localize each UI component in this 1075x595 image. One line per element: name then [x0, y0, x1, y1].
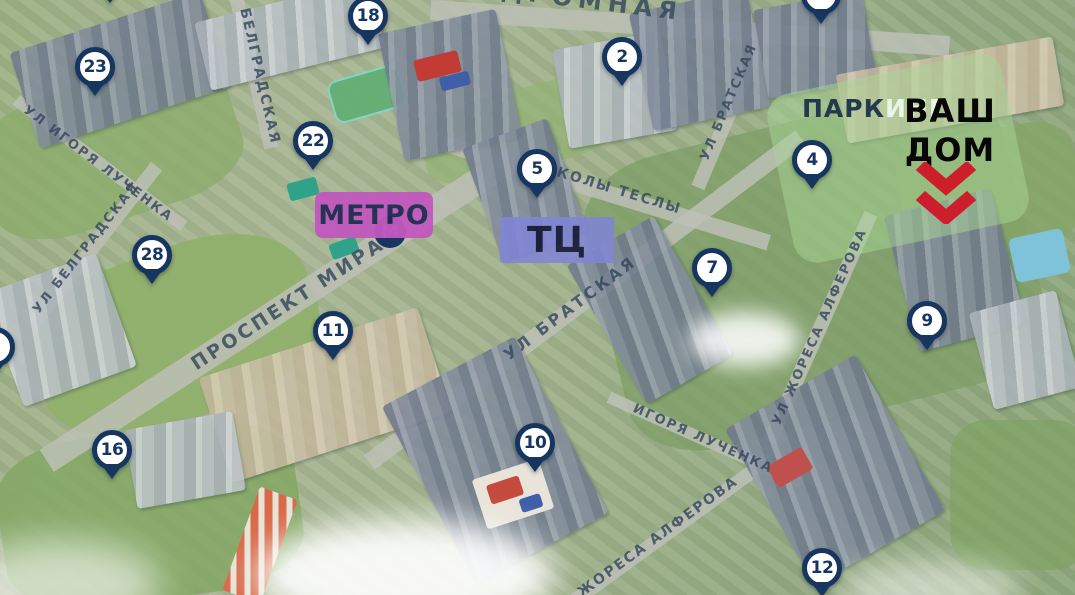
- pin-number: 23: [84, 57, 107, 77]
- pin-tail: [322, 345, 344, 371]
- pin-tail: [0, 361, 6, 387]
- map-pin-4[interactable]: 4: [792, 140, 832, 200]
- map-pin-16[interactable]: 16: [92, 430, 132, 490]
- pin-tail: [810, 9, 832, 35]
- pool: [1008, 228, 1071, 283]
- pin-tail: [916, 335, 938, 361]
- your-home-chevrons-icon: [914, 162, 978, 224]
- pin-number: 9: [921, 311, 932, 331]
- pin-tail: [701, 282, 723, 308]
- map-pin-partial[interactable]: [801, 0, 841, 35]
- park-area: [950, 420, 1075, 570]
- metro-label: МЕТРО: [315, 192, 433, 238]
- map-pin-18[interactable]: 18: [348, 0, 388, 56]
- street-label: ЖОРЕСА АЛФЕРОВА: [575, 473, 742, 595]
- pin-number: 5: [531, 159, 542, 179]
- pin-number: 28: [141, 245, 164, 265]
- pin-tail: [141, 269, 163, 295]
- pin-tail: [801, 174, 823, 200]
- your-home-label: ВАШ ДОМ: [900, 92, 1000, 170]
- parking-label-dark: ПАРК: [802, 94, 885, 123]
- map-pin-partial[interactable]: [0, 327, 15, 387]
- pin-tail: [302, 155, 324, 181]
- pin-number: 12: [811, 558, 834, 578]
- pin-number: 4: [806, 150, 817, 170]
- map-pin-5[interactable]: 5: [517, 149, 557, 209]
- pin-number: 10: [524, 433, 547, 453]
- map-pin-partial[interactable]: [90, 0, 130, 14]
- map-pin-10[interactable]: 10: [515, 423, 555, 483]
- mall-label: ТЦ: [500, 217, 614, 263]
- pin-number: 18: [357, 6, 380, 26]
- pin-number: 7: [706, 258, 717, 278]
- city-map: ДРОМНАЯУЛ БЕЛГРАДСКАЯУЛ ИГОРЯ ЛУЧЕНКАУЛ …: [0, 0, 1075, 595]
- pin-number: 2: [616, 47, 627, 67]
- pin-number: 22: [302, 131, 325, 151]
- pin-tail: [101, 464, 123, 490]
- map-pin-7[interactable]: 7: [692, 248, 732, 308]
- building-cluster: [969, 290, 1075, 410]
- pin-tail: [84, 81, 106, 107]
- pin-number: 11: [322, 321, 345, 341]
- map-pin-9[interactable]: 9: [907, 301, 947, 361]
- map-pin-12[interactable]: 12: [802, 548, 842, 595]
- cloud: [690, 312, 800, 367]
- pin-tail: [357, 30, 379, 56]
- pin-tail: [99, 0, 121, 14]
- pin-number: 16: [101, 440, 124, 460]
- map-pin-22[interactable]: 22: [293, 121, 333, 181]
- pin-tail: [811, 582, 833, 595]
- pin-tail: [611, 71, 633, 97]
- map-pin-11[interactable]: 11: [313, 311, 353, 371]
- map-pin-2[interactable]: 2: [602, 37, 642, 97]
- your-home-line1: ВАШ: [900, 92, 1000, 131]
- pin-tail: [524, 457, 546, 483]
- map-pin-23[interactable]: 23: [75, 47, 115, 107]
- pin-tail: [526, 183, 548, 209]
- map-pin-28[interactable]: 28: [132, 235, 172, 295]
